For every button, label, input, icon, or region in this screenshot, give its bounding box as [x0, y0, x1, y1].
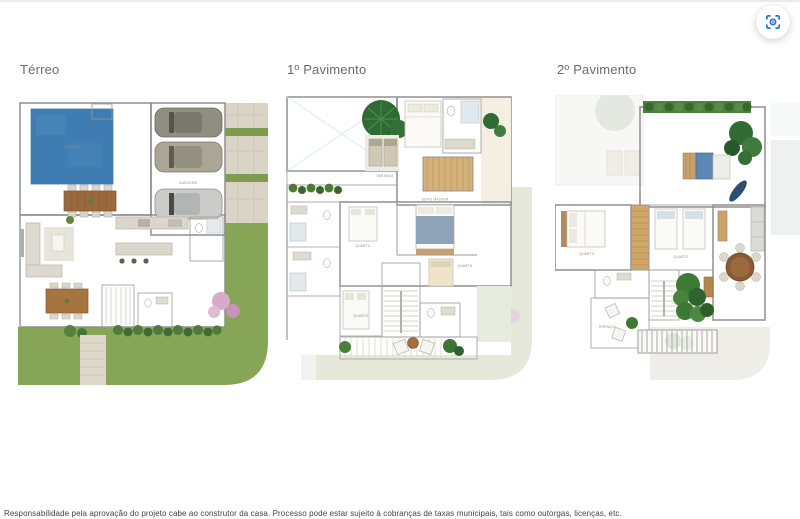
bedroom-a: QUARTO: [349, 207, 377, 248]
svg-text:QUARTO: QUARTO: [457, 264, 472, 268]
legal-disclaimer: Responsabilidade pela aprovação do proje…: [4, 509, 764, 518]
floorplan-pavimento-2-title: 2º Pavimento: [557, 62, 770, 78]
walkway: [80, 335, 106, 385]
daybed: [683, 153, 730, 179]
bathroom: [595, 270, 649, 298]
side-terrace: [481, 98, 511, 204]
floorplan-terreo: Térreo PISCINA: [18, 62, 268, 385]
pool: PISCINA: [30, 104, 114, 185]
svg-text:PISCINA: PISCINA: [65, 145, 80, 149]
kitchen: [116, 217, 188, 264]
bathrooms: [287, 202, 340, 296]
car-1: [155, 108, 222, 137]
svg-text:SUÍTE MASTER: SUÍTE MASTER: [422, 198, 449, 202]
indoor-dining-table: [46, 283, 88, 319]
sidewalk-path: [301, 355, 316, 380]
car-2: [155, 142, 222, 172]
driveway: [225, 103, 268, 223]
bedroom-b: QUARTO: [429, 259, 473, 286]
palm-tree: [362, 100, 408, 138]
bedroom-c: QUARTO: [340, 286, 382, 336]
floorplan-pavimento-2: 2º Pavimento: [555, 62, 770, 380]
closet-strip: [631, 205, 649, 270]
svg-text:QUARTO: QUARTO: [355, 244, 370, 248]
svg-text:QUARTO: QUARTO: [579, 252, 594, 256]
stairs: [382, 263, 420, 337]
sun-loungers: [365, 135, 399, 171]
floorplan-pavimento-2-image: QUARTO QUARTO: [555, 95, 770, 380]
outdoor-dining-table: [64, 185, 116, 217]
suite-bed: [405, 101, 441, 147]
stairs: [102, 285, 134, 327]
bedroom-left: QUARTO: [555, 205, 631, 270]
svg-text:QUARTO: QUARTO: [673, 255, 688, 259]
twin-bedroom: QUARTO: [649, 205, 713, 270]
garage-cars: GARAGEM: [155, 108, 222, 219]
lavabo: [138, 293, 172, 327]
screen-capture-button[interactable]: [756, 5, 790, 39]
floorplan-pavimento-1-image: VARANDA SUÍTE MASTER QUARTO QUARTO: [285, 95, 532, 380]
svg-text:QUARTO: QUARTO: [353, 314, 368, 318]
cropped-element-top: [771, 103, 800, 136]
floorplan-terreo-image: PISCINA: [18, 95, 268, 385]
master-bed: [416, 205, 454, 255]
paddle-board: [726, 178, 749, 204]
cropped-element: [771, 140, 800, 235]
roof-below: [555, 95, 643, 185]
bathroom-lower: [420, 303, 460, 337]
garden-patch: [477, 286, 511, 342]
closet: [423, 157, 473, 191]
floorplan-pavimento-1: 1º Pavimento: [285, 62, 532, 380]
suite-bathroom: [443, 99, 481, 153]
svg-text:TERRAÇO: TERRAÇO: [598, 325, 616, 329]
floorplan-pavimento-1-title: 1º Pavimento: [287, 62, 532, 78]
svg-text:VARANDA: VARANDA: [377, 174, 395, 178]
car-3: [155, 189, 222, 219]
floorplan-terreo-title: Térreo: [20, 62, 268, 78]
terrace-hedge: [643, 101, 751, 113]
living-room: [21, 216, 74, 277]
screen-capture-icon: [763, 12, 783, 32]
pantry-bath: [190, 217, 223, 261]
living-area: [704, 205, 765, 320]
pergola-railing: [638, 330, 717, 353]
top-divider: [0, 0, 800, 2]
svg-text:GARAGEM: GARAGEM: [179, 181, 197, 185]
